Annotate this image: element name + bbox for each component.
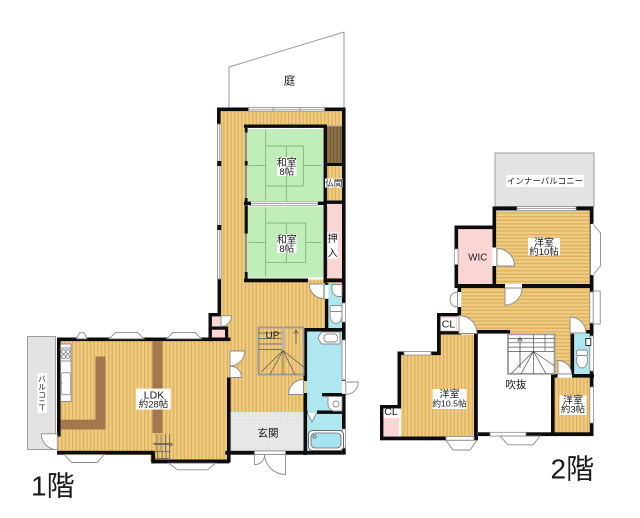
svg-text:玄関: 玄関 bbox=[258, 427, 279, 440]
svg-text:庭: 庭 bbox=[284, 74, 296, 88]
svg-text:UP: UP bbox=[266, 331, 280, 342]
svg-text:約10.5帖: 約10.5帖 bbox=[432, 398, 467, 409]
svg-text:吹抜: 吹抜 bbox=[506, 378, 527, 391]
svg-text:約10帖: 約10帖 bbox=[529, 246, 559, 258]
svg-text:2階: 2階 bbox=[551, 454, 595, 485]
svg-text:約28帖: 約28帖 bbox=[139, 399, 169, 411]
svg-text:入: 入 bbox=[328, 249, 338, 260]
svg-text:仏間: 仏間 bbox=[325, 178, 343, 188]
svg-text:CL: CL bbox=[442, 319, 456, 331]
svg-text:1階: 1階 bbox=[31, 471, 75, 502]
svg-text:約3帖: 約3帖 bbox=[561, 404, 586, 416]
svg-text:WIC: WIC bbox=[468, 253, 487, 264]
svg-text:ー: ー bbox=[38, 404, 47, 412]
svg-text:インナーバルコニー: インナーバルコニー bbox=[507, 176, 583, 186]
svg-text:8帖: 8帖 bbox=[279, 243, 294, 255]
svg-text:押: 押 bbox=[328, 232, 338, 245]
svg-text:8帖: 8帖 bbox=[279, 166, 294, 178]
